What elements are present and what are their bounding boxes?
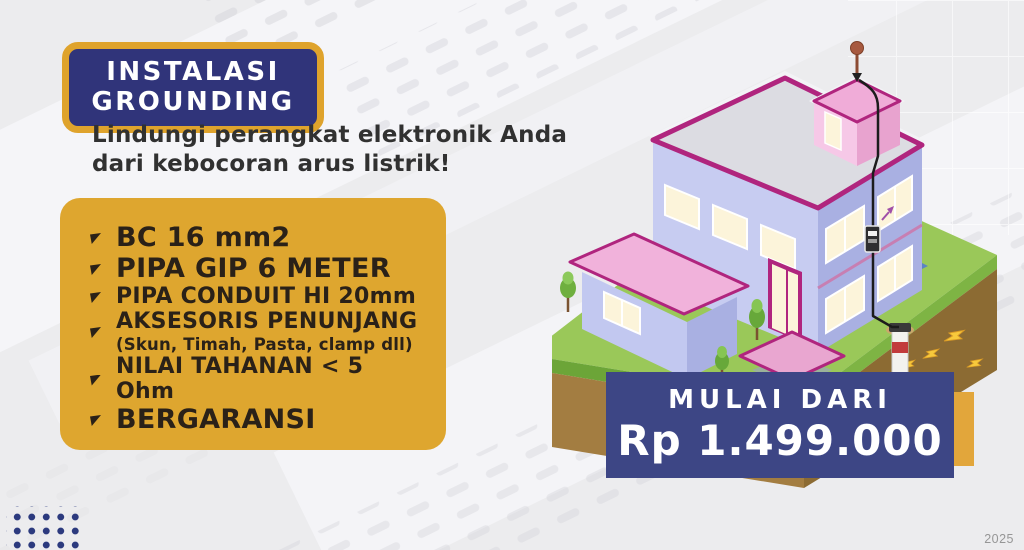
garage-annex xyxy=(570,234,748,379)
front-door xyxy=(768,258,802,342)
tagline: Lindungi perangkat elektronik Anda dari … xyxy=(92,121,567,180)
feature-sublabel: (Skun, Timah, Pasta, clamp dll) xyxy=(116,335,417,354)
meter-box xyxy=(865,226,880,252)
arrow-bullet-icon xyxy=(90,264,101,275)
ground-pad xyxy=(892,257,928,275)
price-box: MULAI DARI Rp 1.499.000 xyxy=(606,372,954,478)
arrow-bullet-icon xyxy=(90,375,101,386)
list-item: BERGARANSI xyxy=(90,404,426,435)
grounding-cable xyxy=(859,80,899,327)
arrow-bullet-icon xyxy=(90,233,101,244)
arrow-bullet-icon xyxy=(90,415,101,426)
lightning-rod-icon xyxy=(851,42,864,83)
dots-decoration xyxy=(6,506,80,550)
list-item: NILAI TAHANAN < 5 Ohm xyxy=(90,354,426,404)
windows xyxy=(826,176,912,333)
lightning-bolts-icon xyxy=(901,324,985,373)
badge-line2: GROUNDING xyxy=(69,87,317,117)
features-list: BC 16 mm2 PIPA GIP 6 METER PIPA CONDUIT … xyxy=(60,198,446,450)
price-amount: Rp 1.499.000 xyxy=(617,416,943,465)
feature-label: BC 16 mm2 xyxy=(116,222,291,253)
price-prefix: MULAI DARI xyxy=(668,385,892,415)
house-main-building xyxy=(649,71,926,353)
title-badge: INSTALASI GROUNDING xyxy=(62,42,324,133)
feature-label: PIPA CONDUIT HI 20mm xyxy=(116,284,416,309)
promo-banner: INSTALASI GROUNDING Lindungi perangkat e… xyxy=(0,0,1024,550)
tagline-line2: dari kebocoran arus listrik! xyxy=(92,150,567,179)
arrow-bullet-icon xyxy=(90,327,101,338)
list-item: PIPA GIP 6 METER xyxy=(90,253,426,284)
badge-line1: INSTALASI xyxy=(69,57,317,87)
list-item: PIPA CONDUIT HI 20mm xyxy=(90,284,426,309)
feature-label: NILAI TAHANAN < 5 Ohm xyxy=(116,354,426,404)
year-label: 2025 xyxy=(984,532,1014,546)
rooftop-penthouse xyxy=(809,76,905,166)
grid-overlay xyxy=(848,0,1024,235)
arrow-bullet-icon xyxy=(90,292,101,303)
feature-label: PIPA GIP 6 METER xyxy=(116,253,391,284)
list-item: BC 16 mm2 xyxy=(90,222,426,253)
feature-label: BERGARANSI xyxy=(116,404,316,435)
list-item: AKSESORIS PENUNJANG (Skun, Timah, Pasta,… xyxy=(90,309,426,354)
tagline-line1: Lindungi perangkat elektronik Anda xyxy=(92,121,567,150)
tree-icon xyxy=(715,299,765,382)
feature-label: AKSESORIS PENUNJANG xyxy=(116,309,417,334)
tree-icon xyxy=(560,272,576,313)
